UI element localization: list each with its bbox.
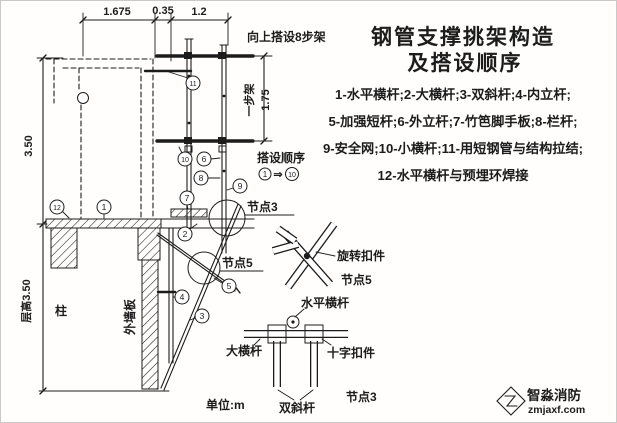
node3-label: 节点3	[247, 199, 278, 214]
build-up-note: 向上搭设8步架	[247, 29, 326, 44]
step-name: 一步架	[242, 84, 256, 117]
dim-350-upper: 3.50	[23, 135, 35, 156]
node3-detail: 水平横杆 大横杆 十字扣件 双斜杆 节点3	[226, 295, 377, 415]
callout-10: 10	[181, 157, 189, 164]
diagonal-braces	[157, 204, 241, 390]
dim-12: 1.2	[191, 6, 206, 18]
legend-line-2: 5-加强短杆;6-外立杆;7-竹笆脚手板;8-栏杆;	[328, 113, 577, 129]
dim-storey-height: 层高3.50	[19, 279, 33, 323]
scaffold-plank	[171, 209, 207, 217]
beam-section	[51, 228, 77, 268]
sequence-title: 搭设顺序	[257, 150, 305, 165]
top-dimension-chain: 1.675 0.35 1.2	[80, 5, 231, 61]
erection-sequence: 搭设顺序 1 ⇒ 10	[257, 150, 305, 181]
legend-line-4: 12-水平横杆与预埋环焊接	[378, 167, 529, 183]
watermark-logo: 智淼消防 zmjaxf.com	[497, 387, 585, 416]
detail-double-diagonal-label: 双斜杆	[279, 400, 315, 415]
legend-line-3: 9-安全网;10-小横杆;11-用短钢管与结构拉结;	[323, 140, 583, 156]
title-block: 钢管支撑挑架构造 及搭设顺序	[371, 25, 555, 75]
logo-name: 智淼消防	[527, 387, 581, 403]
hidden-structure-outline	[46, 59, 153, 219]
dim-035: 0.35	[152, 5, 173, 17]
detail-horizontal-bar-label: 水平横杆	[301, 295, 349, 310]
callout-9: 9	[238, 181, 243, 191]
logo-icon	[497, 387, 525, 415]
callout-6: 6	[202, 154, 207, 164]
node5-label: 节点5	[222, 255, 253, 270]
wall-beam-head	[138, 228, 160, 260]
page-title-line1: 钢管支撑挑架构造	[371, 25, 555, 49]
detail-cross-coupler-label: 十字扣件	[327, 345, 375, 360]
diagram-page: 1.675 0.35 1.2 向上搭设8步架 3.50 层高3.50 柱	[0, 0, 617, 423]
callout-1: 1	[102, 202, 107, 212]
scaffold-diagram-svg: 1.675 0.35 1.2 向上搭设8步架 3.50 层高3.50 柱	[1, 1, 617, 423]
coupler-node5-label: 节点5	[341, 272, 372, 287]
callout-7: 7	[185, 193, 190, 203]
rotating-coupler-detail: 旋转扣件 节点5	[273, 224, 385, 287]
sequence-arrow: ⇒	[273, 169, 282, 181]
callout-8: 8	[199, 173, 204, 183]
column-label: 柱	[55, 303, 67, 318]
sequence-from: 1	[263, 170, 268, 179]
step-value: 1.75	[260, 89, 272, 110]
detail-big-bar-label: 大横杆	[226, 343, 262, 358]
detail-node3-label: 节点3	[346, 389, 377, 404]
callout-5: 5	[227, 281, 232, 291]
callout-4: 4	[180, 292, 185, 302]
legend-line-1: 1-水平横杆;2-大横杆;3-双斜杆;4-内立杆;	[335, 86, 571, 102]
legend-block: 1-水平横杆;2-大横杆;3-双斜杆;4-内立杆; 5-加强短杆;6-外立杆;7…	[323, 86, 583, 183]
exterior-wall-label: 外墙板	[122, 298, 137, 335]
page-title-line2: 及搭设顺序	[408, 51, 523, 75]
embedded-hook	[78, 93, 89, 104]
exterior-wall-panel	[142, 260, 158, 389]
logo-site: zmjaxf.com	[528, 404, 585, 416]
floor-slab-and-bar	[46, 219, 254, 389]
rotating-coupler-label: 旋转扣件	[336, 248, 385, 263]
callout-12: 12	[53, 205, 61, 212]
step-dimension: 一步架 1.75	[242, 53, 272, 144]
callout-3: 3	[200, 311, 205, 321]
dim-1675: 1.675	[103, 6, 131, 18]
callout-11: 11	[189, 81, 196, 88]
callout-2: 2	[183, 229, 188, 239]
unit-note: 单位:m	[206, 397, 245, 412]
sequence-to: 10	[288, 172, 296, 179]
